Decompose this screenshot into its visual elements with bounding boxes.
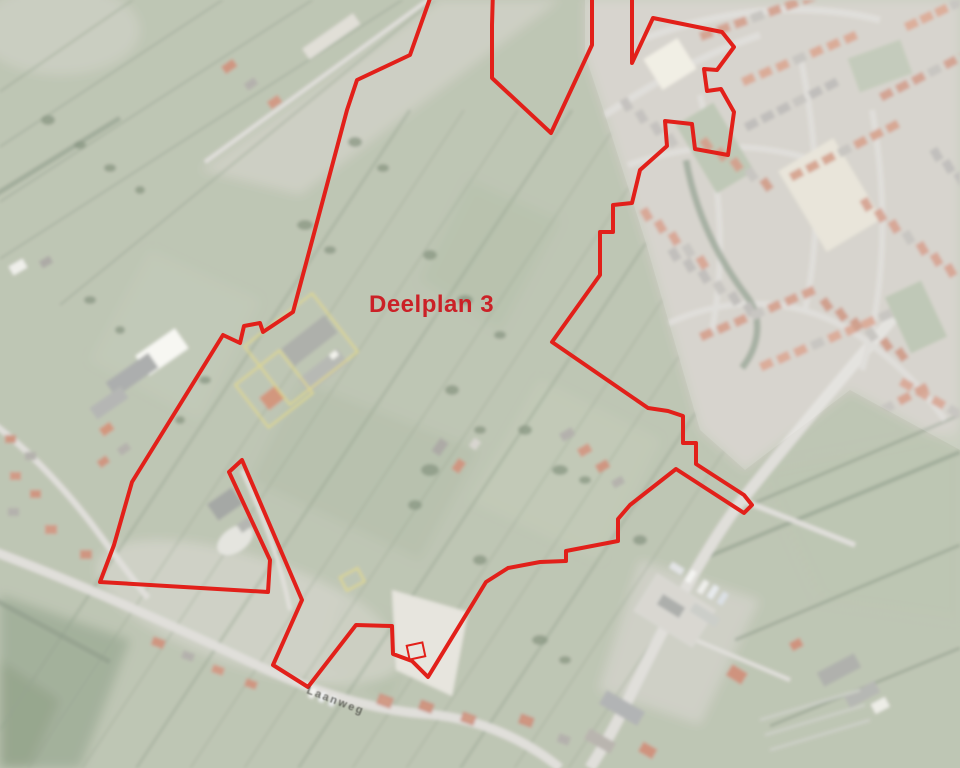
aerial-photo: Deelplan 3 Laanweg bbox=[0, 0, 960, 768]
aerial-map-view: Deelplan 3 Laanweg bbox=[0, 0, 960, 768]
area-label: Deelplan 3 bbox=[369, 291, 494, 318]
